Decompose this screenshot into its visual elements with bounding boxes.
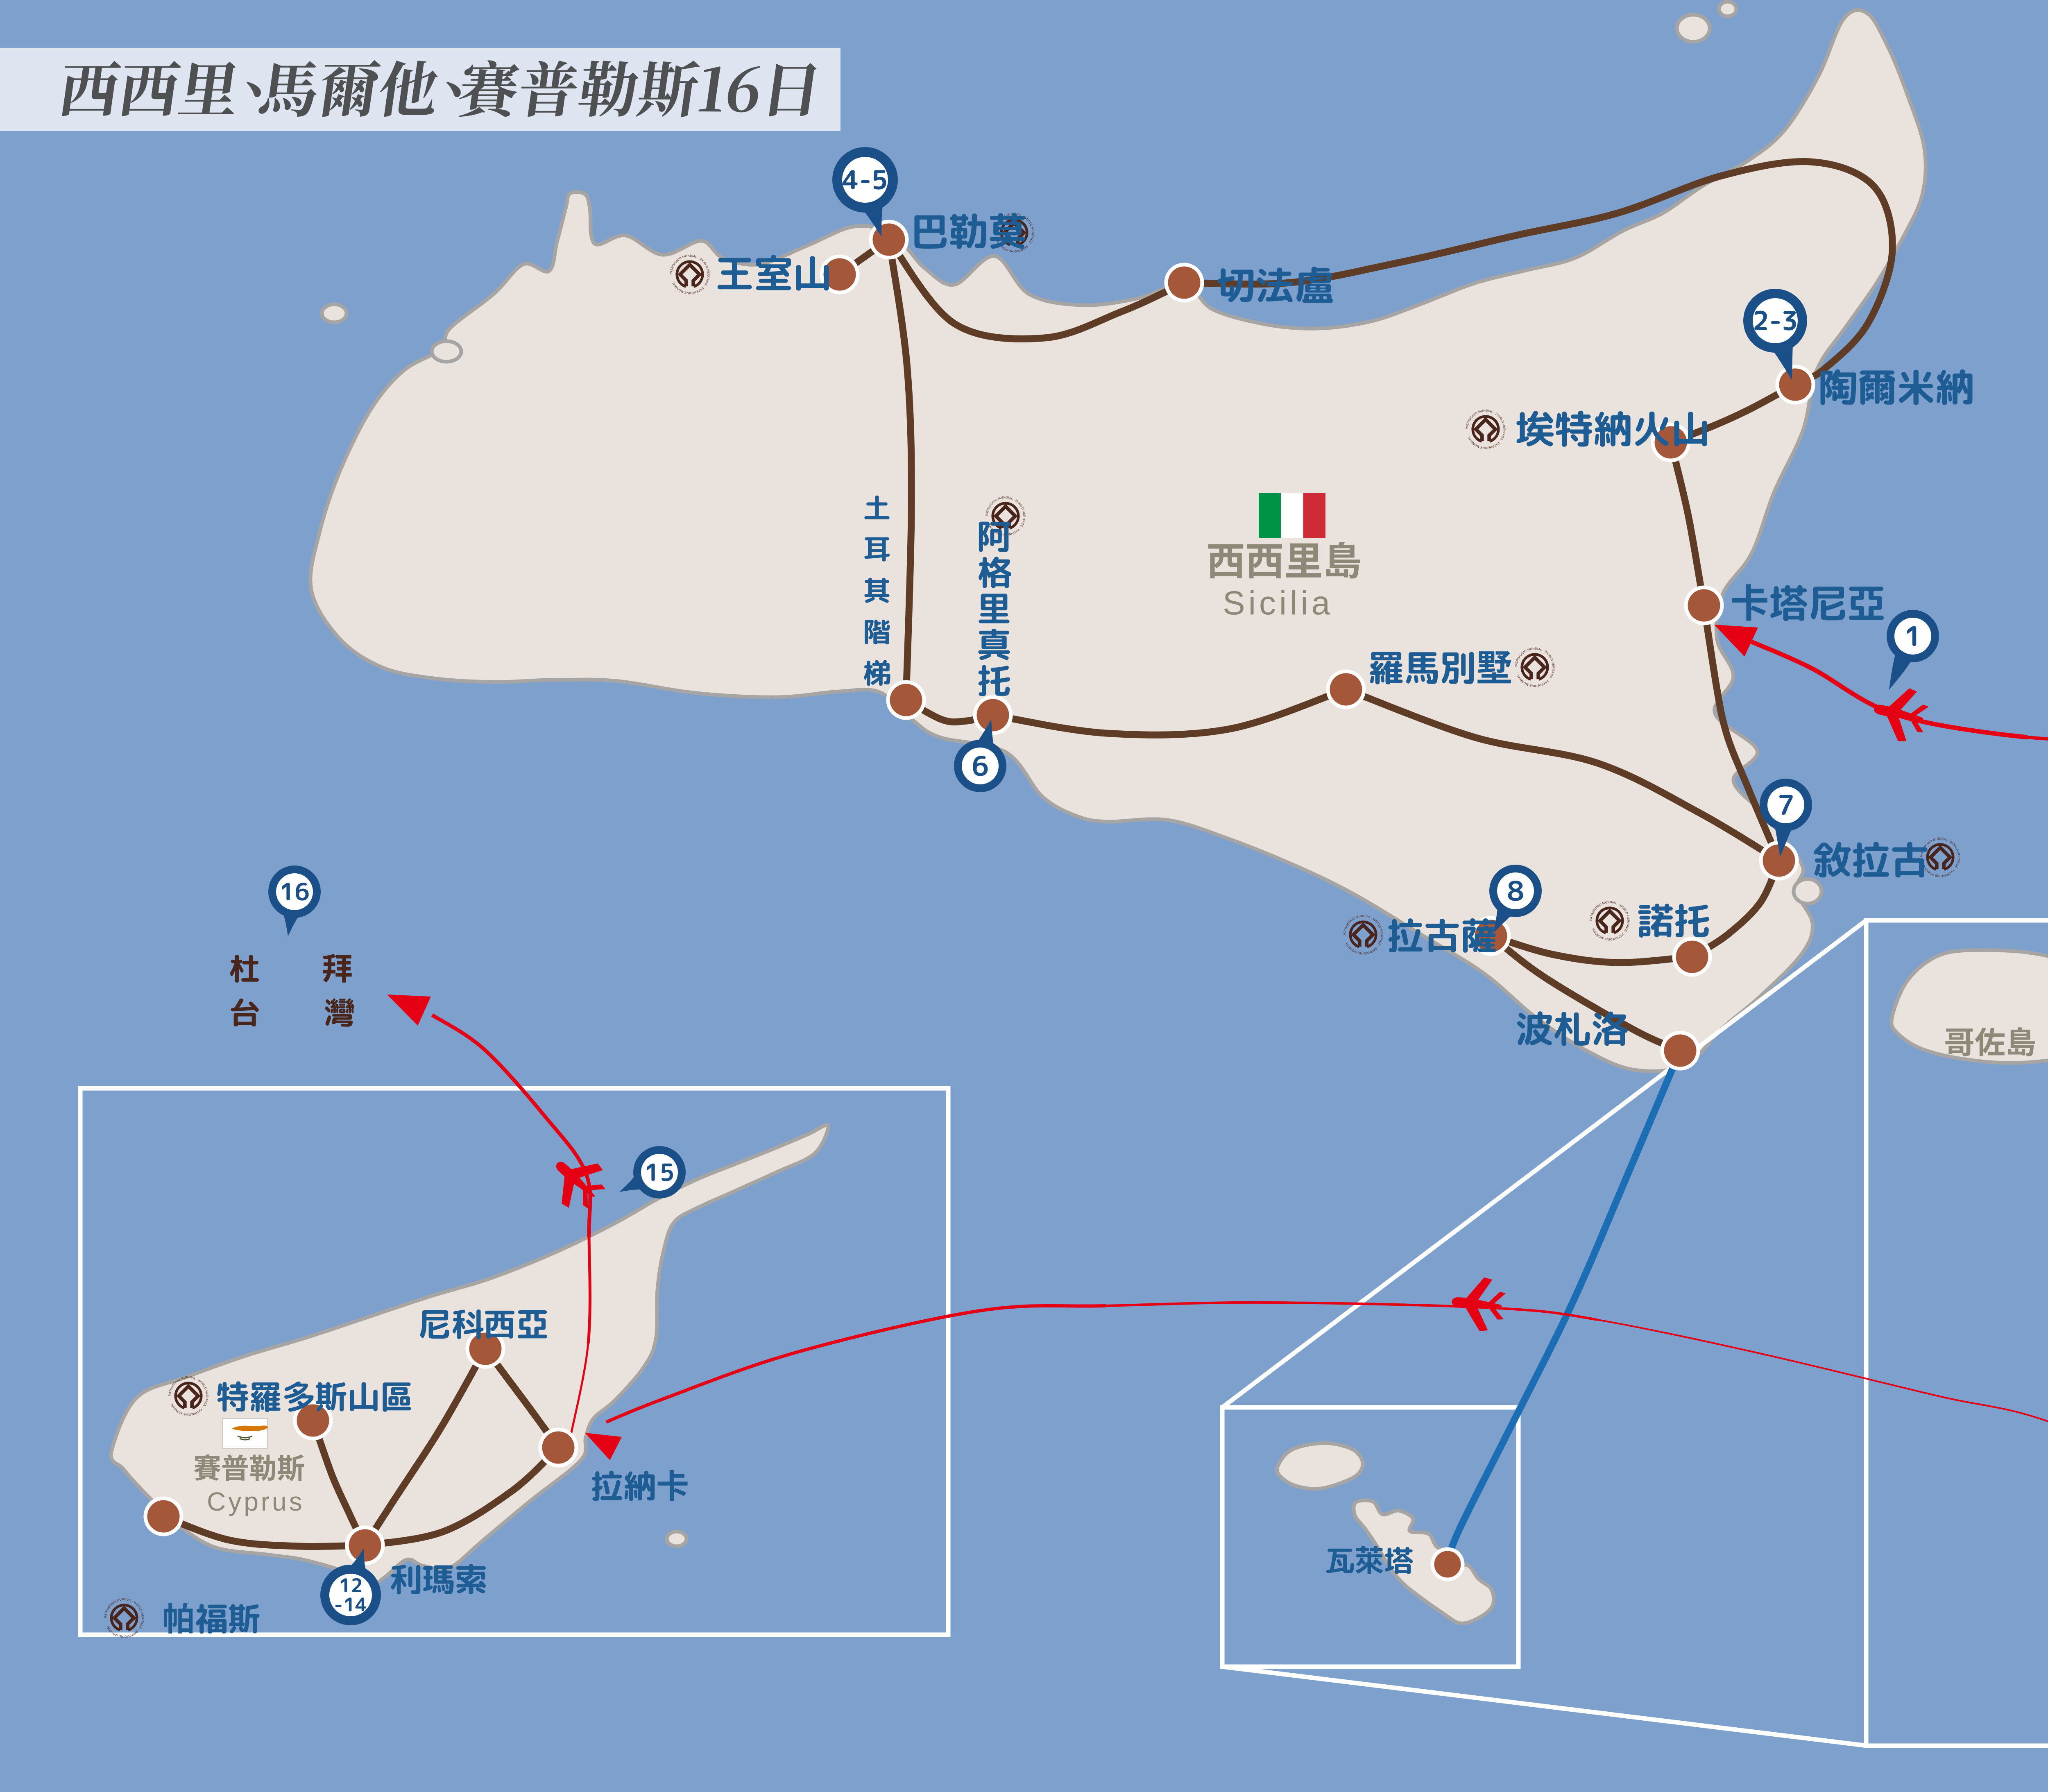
svg-text:Sicilia: Sicilia bbox=[1223, 584, 1333, 622]
svg-text:Cyprus: Cyprus bbox=[207, 1487, 305, 1516]
